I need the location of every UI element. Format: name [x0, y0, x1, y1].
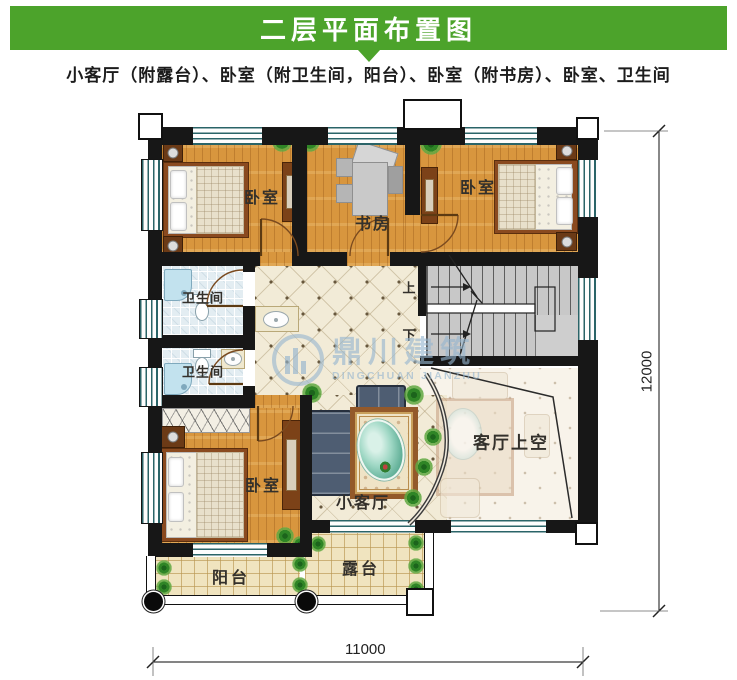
window — [142, 453, 162, 523]
wall-segment — [300, 408, 312, 520]
plant-icon — [408, 558, 424, 574]
column-marker — [575, 522, 598, 545]
wall-segment — [148, 406, 162, 453]
door-threshold — [255, 395, 305, 408]
door-threshold — [405, 215, 420, 252]
bed-blanket — [196, 452, 244, 538]
wall-segment — [300, 533, 312, 557]
stair-up-label: 上 — [402, 278, 417, 297]
door-threshold — [347, 252, 390, 266]
railing — [146, 595, 432, 605]
wall-segment — [148, 230, 162, 300]
column-marker — [576, 117, 599, 140]
wall-segment — [578, 217, 598, 278]
plant-icon — [424, 428, 442, 446]
pillow — [556, 197, 573, 225]
room-label-study: 书房 — [355, 210, 391, 234]
window — [578, 278, 598, 340]
sink — [263, 311, 289, 328]
floor-plan-page: 二层平面布置图 小客厅（附露台）、卧室（附卫生间，阳台）、卧室（附书房）、卧室、… — [0, 0, 737, 680]
column-marker — [406, 588, 434, 616]
plant-icon — [292, 556, 308, 572]
void-sofa — [452, 372, 508, 400]
page-title: 二层平面布置图 — [260, 10, 477, 47]
room-label-balcony: 阳台 — [212, 564, 250, 588]
plant-icon — [408, 535, 424, 551]
plant-icon — [156, 560, 172, 576]
stair-down-label: 下 — [402, 325, 417, 344]
window — [465, 127, 537, 145]
study-desk — [352, 162, 388, 216]
wall-segment — [578, 340, 598, 533]
column-round — [144, 592, 163, 611]
nightstand — [161, 426, 185, 448]
wall-segment — [415, 520, 451, 533]
window — [193, 127, 262, 145]
nightstand — [163, 143, 183, 162]
stair-landing — [535, 315, 578, 357]
pillow — [168, 457, 184, 487]
sofa — [309, 410, 352, 496]
window — [328, 127, 397, 145]
wall-segment — [148, 523, 162, 557]
wall-segment — [420, 356, 578, 366]
wall-segment — [418, 252, 426, 316]
column-round — [297, 592, 316, 611]
room-label-bathroom-upper: 卫生间 — [182, 288, 224, 307]
window — [578, 160, 598, 217]
wall-segment — [243, 386, 255, 408]
sink — [224, 352, 242, 366]
room-label-bedroom-top-right: 卧室 — [460, 174, 496, 198]
bed-blanket — [498, 164, 536, 230]
plant-icon — [404, 385, 424, 405]
room-label-terrace: 露台 — [342, 555, 380, 579]
window — [193, 543, 267, 557]
dresser — [282, 420, 301, 510]
pillow — [168, 492, 184, 522]
dresser — [421, 167, 438, 224]
room-label-living-room-void: 客厅上空 — [473, 429, 549, 454]
wall-segment — [148, 335, 255, 348]
room-label-bedroom-top-left: 卧室 — [244, 184, 280, 208]
plant-icon — [292, 577, 308, 593]
window — [451, 520, 546, 533]
page-subtitle: 小客厅（附露台）、卧室（附卫生间，阳台）、卧室（附书房）、卧室、卫生间 — [0, 61, 737, 86]
wall-segment — [243, 266, 255, 272]
plant-icon — [415, 458, 433, 476]
desk-chair — [336, 184, 353, 203]
room-label-small-living-room: 小客厅 — [336, 489, 390, 513]
dimension-height-label: 12000 — [638, 351, 655, 393]
desk-chair — [336, 158, 353, 177]
window — [140, 368, 162, 406]
wall-segment — [148, 252, 260, 266]
bed-blanket — [196, 166, 244, 234]
desk-cabinet — [388, 166, 403, 194]
pillow — [556, 167, 573, 195]
terrace-door-window — [330, 520, 415, 533]
plant-icon — [404, 489, 422, 507]
window — [142, 160, 162, 230]
wall-segment — [300, 395, 312, 408]
wall-segment — [243, 306, 255, 350]
void-sofa — [440, 478, 480, 518]
wall-segment — [148, 395, 255, 408]
room-label-bedroom-bottom-left: 卧室 — [245, 472, 281, 496]
wall-segment — [148, 338, 162, 368]
pillow — [170, 202, 187, 231]
room-label-bathroom-lower: 卫生间 — [182, 362, 224, 381]
pillow — [170, 170, 187, 199]
nightstand — [556, 232, 577, 251]
window — [140, 300, 162, 338]
column-marker — [138, 113, 163, 140]
plant-icon — [310, 536, 326, 552]
wall-segment — [300, 520, 330, 533]
wall-segment — [292, 127, 307, 266]
page-header: 二层平面布置图 — [10, 6, 727, 50]
dimension-width-label: 11000 — [345, 641, 386, 658]
bay-window — [403, 99, 462, 130]
